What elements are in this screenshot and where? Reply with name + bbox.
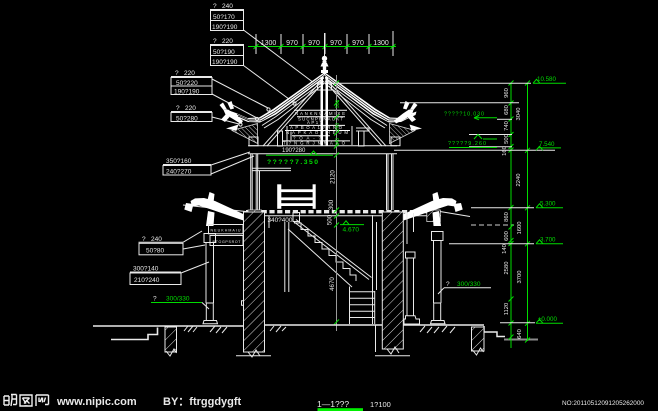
svg-text:1—1???: 1—1??? (317, 399, 349, 409)
svg-text:160: 160 (502, 146, 508, 156)
svg-text:740: 740 (504, 121, 510, 131)
svg-text:680: 680 (504, 105, 510, 115)
svg-text:860: 860 (504, 212, 510, 222)
svg-text:1600: 1600 (517, 222, 523, 235)
svg-text:240?270: 240?270 (166, 169, 192, 176)
svg-text:4.670: 4.670 (343, 227, 360, 234)
svg-text:2240: 2240 (516, 174, 522, 187)
svg-text:960: 960 (504, 88, 510, 98)
svg-text:970: 970 (330, 40, 342, 47)
svg-text:?????7.350: ?????7.350 (267, 159, 318, 166)
svg-text:190?190: 190?190 (212, 24, 238, 31)
svg-text:?????9.260: ?????9.260 (448, 141, 486, 147)
svg-text:300?140: 300?140 (133, 266, 159, 273)
svg-text:600: 600 (504, 231, 510, 241)
svg-text:190?190: 190?190 (212, 59, 238, 66)
svg-text:? 220: ? 220 (175, 70, 195, 77)
svg-text:RTOGPSROT: RTOGPSROT (213, 240, 242, 244)
svg-text:500: 500 (504, 134, 510, 144)
svg-text:500: 500 (335, 100, 341, 109)
svg-text:50?170: 50?170 (213, 14, 235, 21)
svg-text:50?280: 50?280 (176, 116, 198, 123)
svg-text:? 220: ? 220 (213, 38, 233, 45)
svg-text:350?160: 350?160 (166, 158, 192, 165)
svg-text:740: 740 (335, 138, 341, 147)
svg-text:10.580: 10.580 (537, 76, 556, 83)
svg-text:300: 300 (328, 199, 335, 210)
svg-text:970: 970 (286, 40, 298, 47)
svg-text:300/330: 300/330 (457, 281, 481, 288)
svg-text:640: 640 (517, 329, 523, 339)
svg-text:300/330: 300/330 (166, 296, 190, 303)
svg-text:±0.000: ±0.000 (538, 316, 557, 323)
svg-text:4670: 4670 (329, 277, 336, 291)
svg-text:2580: 2580 (504, 262, 510, 275)
svg-text:50?80: 50?80 (146, 247, 164, 254)
svg-text:? 220: ? 220 (176, 105, 196, 112)
svg-text:NEUKHMAIU: NEUKHMAIU (211, 229, 241, 233)
svg-text:1300: 1300 (373, 40, 389, 47)
svg-text:1?100: 1?100 (370, 400, 391, 409)
svg-text:www.nipic.com: www.nipic.com (56, 396, 137, 408)
svg-text:1300: 1300 (261, 40, 277, 47)
svg-text:970: 970 (352, 40, 364, 47)
svg-text:?: ? (446, 281, 450, 288)
svg-text:190?190: 190?190 (174, 89, 200, 96)
svg-text:140: 140 (502, 244, 508, 254)
svg-text:190?280: 190?280 (282, 148, 306, 154)
svg-text:NO:20110512091205262000: NO:20110512091205262000 (562, 400, 644, 407)
svg-text:500: 500 (327, 214, 334, 225)
svg-text:7.540: 7.540 (539, 141, 555, 148)
svg-text:970: 970 (308, 40, 320, 47)
svg-text:BY：ftrggdygft: BY：ftrggdygft (163, 396, 242, 408)
svg-text:3700: 3700 (517, 271, 523, 284)
svg-text:?????10.030: ?????10.030 (444, 112, 484, 118)
svg-text:? 240: ? 240 (213, 3, 233, 10)
svg-text:3040: 3040 (516, 108, 522, 121)
svg-text:2120: 2120 (330, 170, 337, 184)
svg-text:?: ? (153, 296, 157, 303)
svg-text:210?240: 210?240 (134, 277, 160, 284)
svg-text:240: 240 (335, 123, 341, 132)
svg-text:1120: 1120 (504, 303, 510, 315)
svg-text:50?190: 50?190 (213, 49, 235, 56)
